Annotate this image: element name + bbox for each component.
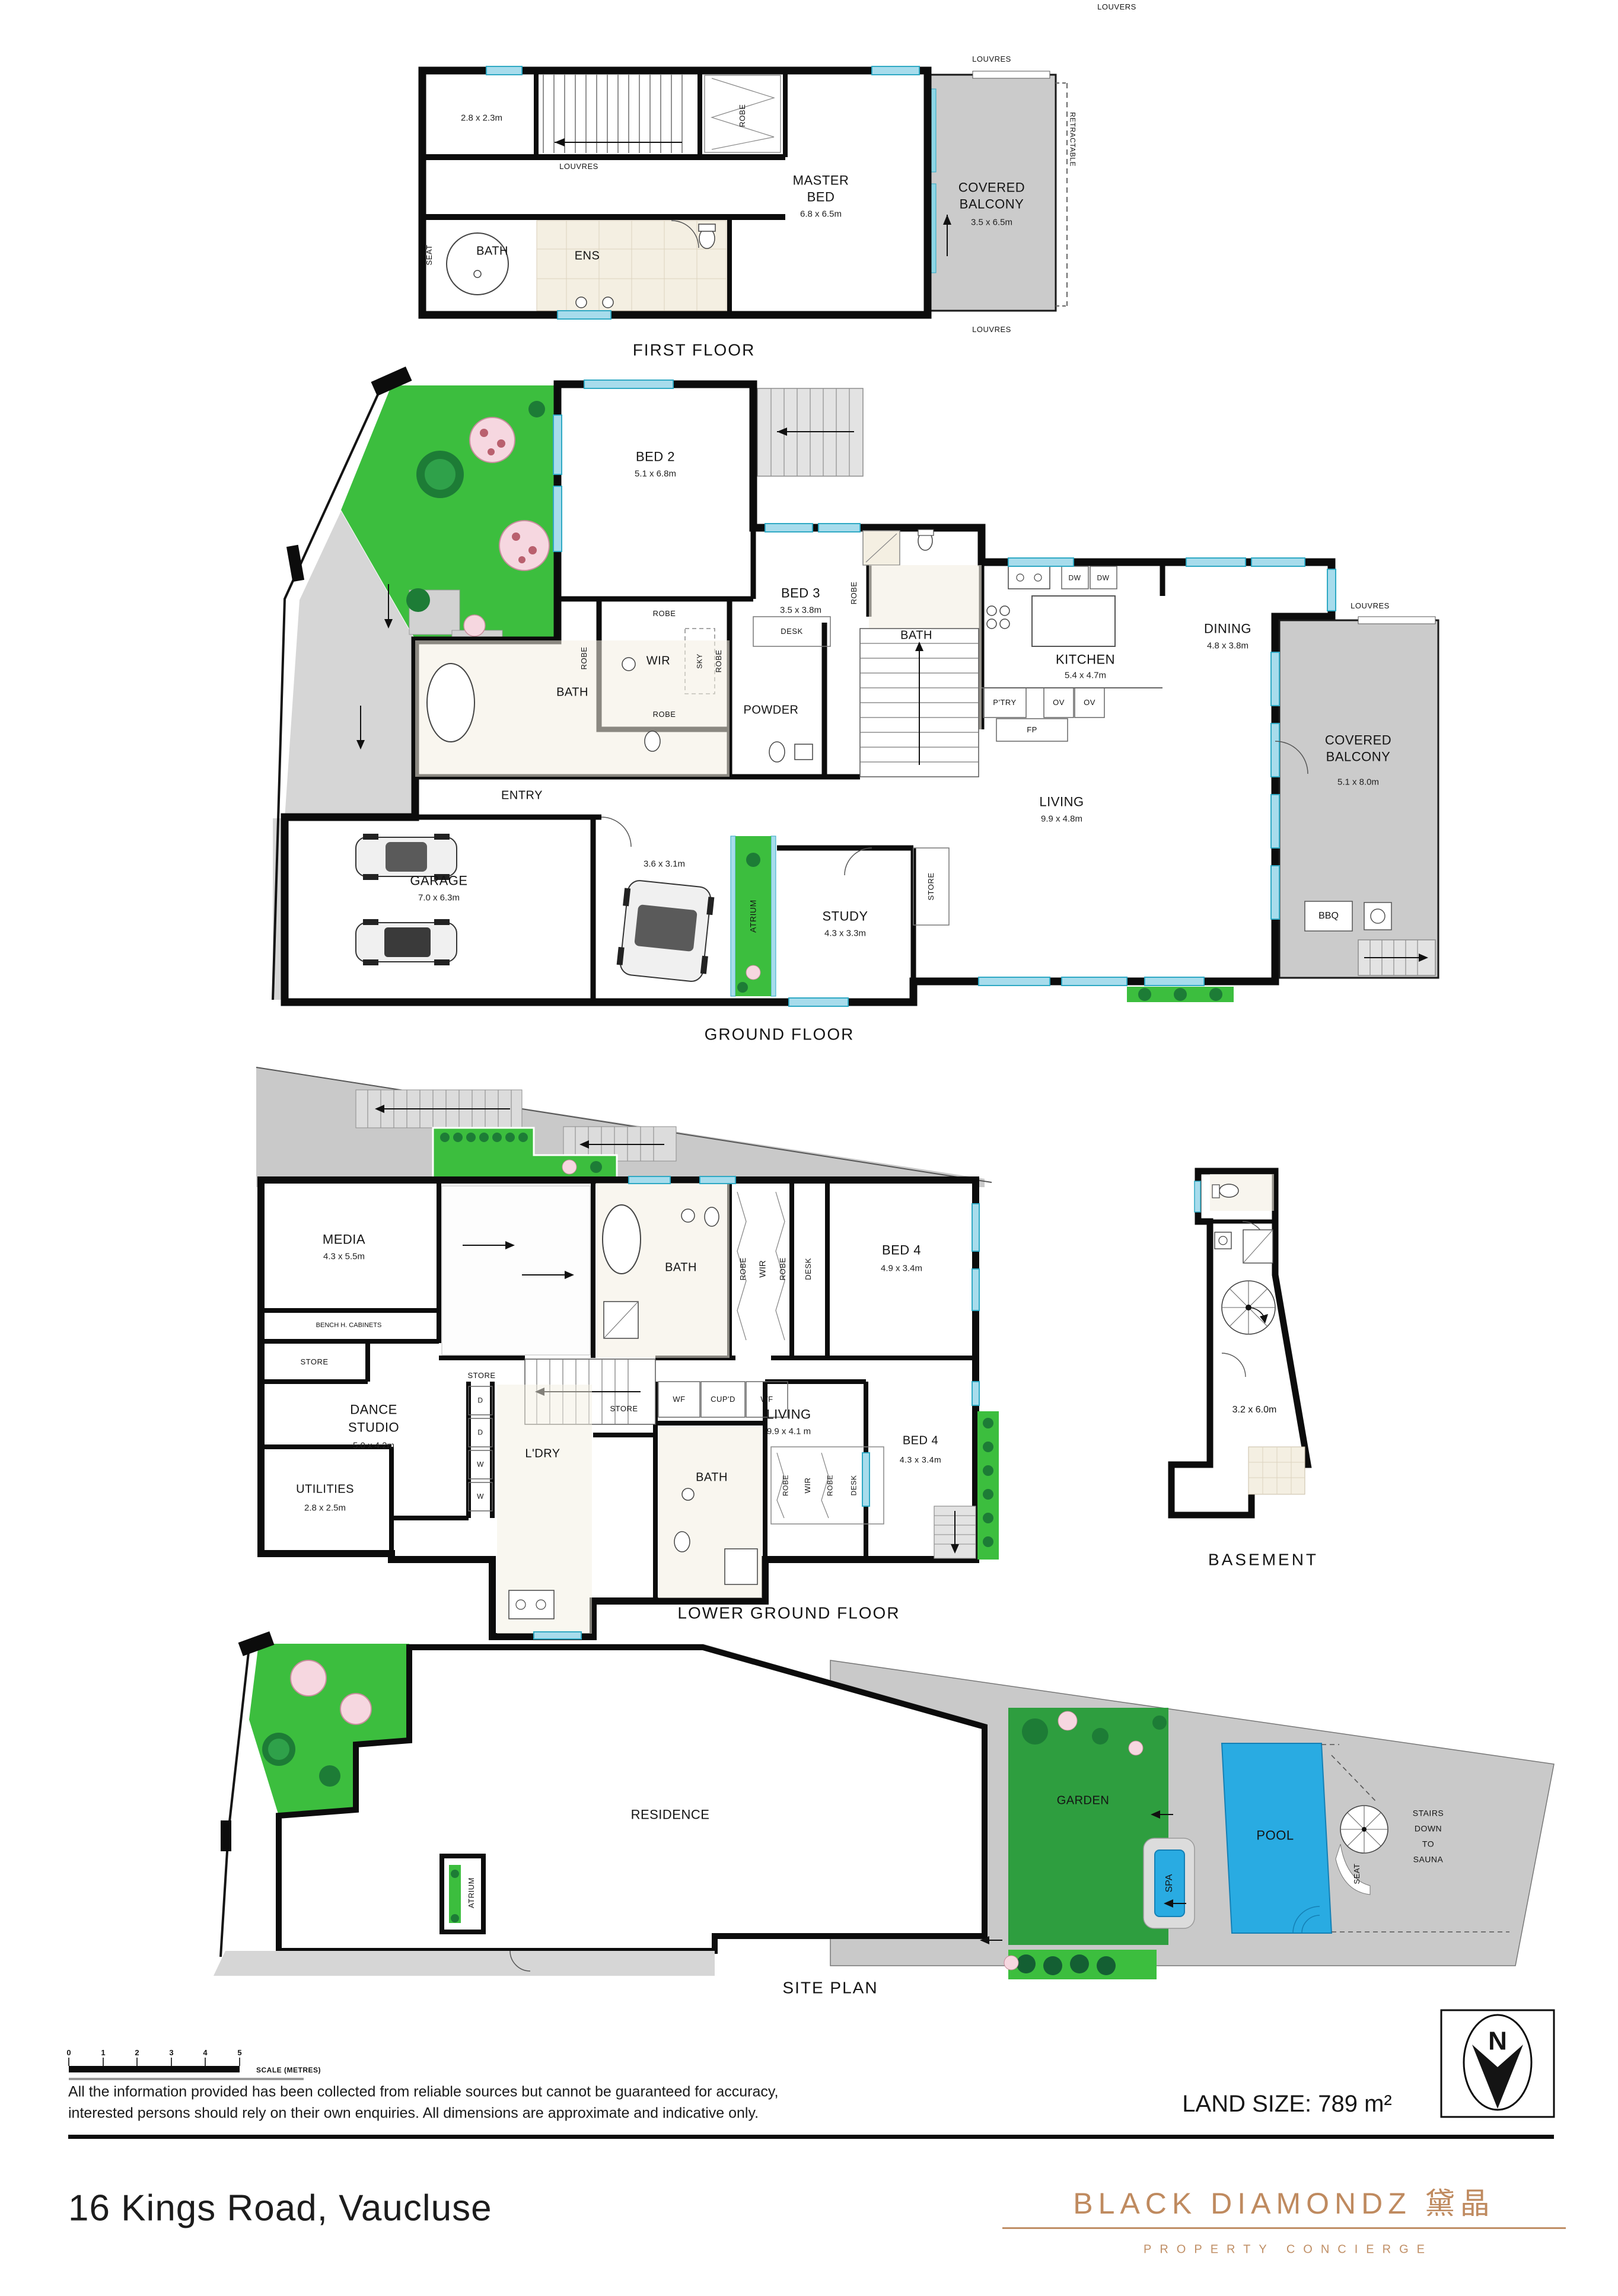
site-residence-label: RESIDENCE bbox=[631, 1806, 710, 1823]
gf-balcony-label: COVERED BALCONY bbox=[1314, 732, 1403, 765]
lg-w2-label: W bbox=[477, 1493, 484, 1501]
land-size-label: LAND SIZE: 789 m² bbox=[1182, 2089, 1391, 2119]
ff-louvres-bottom-label: LOUVRES bbox=[972, 325, 1011, 334]
toilet-icon bbox=[769, 742, 785, 762]
gf-robe-right-label: ROBE bbox=[714, 650, 724, 673]
gf-powder-label: POWDER bbox=[744, 703, 799, 718]
lg-d1-label: D bbox=[477, 1396, 483, 1405]
site-atrium bbox=[442, 1856, 483, 1932]
lg-robe-a-label: ROBE bbox=[738, 1258, 748, 1281]
lg-bed4-upper-label: BED 4 bbox=[882, 1242, 921, 1258]
site-stairs-line1: STAIRS bbox=[1413, 1808, 1444, 1819]
lg-desk-lower-label: DESK bbox=[850, 1475, 859, 1496]
gf-dw2-label: DW bbox=[1097, 574, 1110, 583]
scale-tick-2: 2 bbox=[135, 2048, 139, 2058]
address-title: 16 Kings Road, Vaucluse bbox=[68, 2187, 492, 2230]
site-stairs-line3: TO bbox=[1422, 1839, 1434, 1849]
ff-ens-label: ENS bbox=[575, 249, 600, 264]
lg-robe-d-label: ROBE bbox=[826, 1475, 835, 1496]
footer-divider bbox=[68, 2135, 1554, 2139]
lg-utilities-dim: 2.8 x 2.5m bbox=[304, 1503, 346, 1514]
disclaimer-line1: All the information provided has been co… bbox=[68, 2084, 778, 2101]
lg-wf2-label: WF bbox=[760, 1395, 773, 1404]
ff-balcony-dim: 3.5 x 6.5m bbox=[971, 218, 1012, 229]
disclaimer-line2: interested persons should rely on their … bbox=[68, 2105, 759, 2122]
gf-study-dim: 4.3 x 3.3m bbox=[824, 929, 866, 940]
lg-wf1-label: WF bbox=[673, 1395, 685, 1404]
gf-ptry-label: P'TRY bbox=[993, 698, 1016, 707]
gf-desk-label: DESK bbox=[781, 627, 802, 636]
logo-rule bbox=[1002, 2227, 1566, 2229]
gf-dining-dim: 4.8 x 3.8m bbox=[1207, 641, 1248, 652]
gf-robe-bottom-label: ROBE bbox=[653, 710, 676, 719]
lg-dance-label: DANCE bbox=[350, 1401, 397, 1418]
caption-lower-ground-floor: LOWER GROUND FLOOR bbox=[677, 1603, 900, 1624]
lg-robe-b-label: ROBE bbox=[778, 1258, 788, 1281]
caption-basement: BASEMENT bbox=[1208, 1549, 1318, 1570]
car-icon bbox=[616, 879, 715, 983]
gf-bbq-label: BBQ bbox=[1318, 910, 1339, 922]
gf-bed3-dim: 3.5 x 3.8m bbox=[780, 605, 821, 617]
ff-retractable-label: RETRACTABLE bbox=[1068, 112, 1077, 167]
louvers-top-label: LOUVERS bbox=[1097, 2, 1136, 12]
lg-bench-label: BENCH H. CABINETS bbox=[316, 1322, 382, 1330]
gf-dining-label: DINING bbox=[1204, 620, 1251, 637]
scale-caption: SCALE (METRES) bbox=[256, 2066, 321, 2074]
ff-louvres-mid-label: LOUVRES bbox=[559, 162, 598, 171]
basement-dim-label: 3.2 x 6.0m bbox=[1232, 1404, 1277, 1416]
lg-store-bottom-label: STORE bbox=[610, 1404, 638, 1414]
gf-robe-top-label: ROBE bbox=[653, 609, 676, 618]
gf-store-label: STORE bbox=[926, 872, 936, 900]
ff-robe-label: ROBE bbox=[738, 104, 747, 127]
gf-study-label: STUDY bbox=[822, 908, 868, 924]
gf-robe-bed3-label: ROBE bbox=[849, 582, 859, 605]
ff-seat-label: SEAT bbox=[425, 245, 434, 266]
gf-entry-label: ENTRY bbox=[501, 789, 543, 803]
lg-utilities-label: UTILITIES bbox=[296, 1482, 354, 1497]
gf-robe-left-label: ROBE bbox=[579, 647, 589, 670]
site-stairs-line4: SAUNA bbox=[1413, 1854, 1444, 1865]
lg-wir-lower-label: WIR bbox=[803, 1478, 813, 1494]
site-pool-label: POOL bbox=[1256, 1827, 1294, 1844]
scale-tick-1: 1 bbox=[101, 2048, 105, 2058]
gf-living-label: LIVING bbox=[1039, 793, 1084, 810]
site-stairs-line2: DOWN bbox=[1415, 1823, 1442, 1834]
lg-media-dim: 4.3 x 5.5m bbox=[323, 1252, 365, 1263]
site-plan bbox=[214, 1631, 1554, 1979]
basement-plan bbox=[1171, 1171, 1308, 1515]
lg-media-label: MEDIA bbox=[323, 1231, 365, 1248]
kitchen-island bbox=[1032, 596, 1115, 646]
gf-kitchen-label: KITCHEN bbox=[1056, 651, 1115, 668]
gf-garage-label: GARAGE bbox=[410, 872, 467, 889]
lg-bed4-lower-dim: 4.3 x 3.4m bbox=[900, 1455, 941, 1465]
lg-dance-dim: 5.0 x 4.2m bbox=[353, 1441, 394, 1452]
ff-louvres-top-label: LOUVRES bbox=[972, 55, 1011, 64]
gf-fp-label: FP bbox=[1027, 725, 1037, 735]
gf-wir-label: WIR bbox=[646, 654, 670, 669]
site-seat-label: SEAT bbox=[1352, 1864, 1362, 1884]
car-icon bbox=[356, 919, 457, 965]
lg-d2-label: D bbox=[477, 1428, 483, 1437]
lg-bath-lower-label: BATH bbox=[696, 1471, 728, 1485]
scale-tick-3: 3 bbox=[169, 2048, 173, 2058]
gf-bed3-label: BED 3 bbox=[781, 585, 820, 601]
lg-living-dim: 9.9 x 4.1 m bbox=[767, 1427, 811, 1438]
scale-tick-4: 4 bbox=[203, 2048, 207, 2058]
caption-site-plan: SITE PLAN bbox=[782, 1978, 878, 1998]
site-atrium-label: ATRIUM bbox=[467, 1877, 476, 1908]
ff-master-bed-label: MASTER BED bbox=[785, 173, 856, 205]
toilet-icon bbox=[1219, 1184, 1238, 1197]
floorplan-graphics bbox=[0, 0, 1618, 2296]
caption-ground-floor: GROUND FLOOR bbox=[705, 1024, 855, 1045]
spiral-stair-icon bbox=[1222, 1281, 1275, 1334]
lg-bed4-upper-dim: 4.9 x 3.4m bbox=[881, 1264, 922, 1275]
ff-master-bed-dim: 6.8 x 6.5m bbox=[800, 209, 842, 221]
gf-bed2-dim: 5.1 x 6.8m bbox=[635, 469, 676, 480]
gf-bath-main-label: BATH bbox=[556, 685, 588, 700]
bathtub-icon bbox=[447, 233, 508, 295]
ff-balcony-label: COVERED BALCONY bbox=[950, 180, 1033, 212]
gf-carport-dim: 3.6 x 3.1m bbox=[644, 859, 685, 870]
site-spiral-stair-icon bbox=[1340, 1806, 1388, 1853]
lg-desk-upper-label: DESK bbox=[804, 1258, 813, 1280]
bathtub-icon bbox=[427, 664, 474, 742]
gf-garage-dim: 7.0 x 6.3m bbox=[418, 893, 460, 904]
kitchen-sink-icon bbox=[1008, 566, 1050, 589]
gf-louvres-label: LOUVRES bbox=[1351, 601, 1390, 611]
logo-brand: BLACK DIAMONDZ 黛晶 bbox=[1073, 2185, 1495, 2222]
lg-ldry-label: L'DRY bbox=[525, 1447, 560, 1462]
gf-dw1-label: DW bbox=[1069, 574, 1081, 583]
lg-robe-c-label: ROBE bbox=[782, 1475, 791, 1496]
scale-tick-5: 5 bbox=[237, 2048, 241, 2058]
ff-bath-label: BATH bbox=[476, 244, 508, 259]
site-garden-label: GARDEN bbox=[1057, 1794, 1110, 1809]
gf-balcony-dim: 5.1 x 8.0m bbox=[1337, 777, 1379, 789]
gf-ov1-label: OV bbox=[1053, 698, 1065, 707]
lg-store-left-label: STORE bbox=[300, 1357, 328, 1367]
compass-north-label: N bbox=[1488, 2025, 1507, 2058]
lg-w1-label: W bbox=[477, 1460, 484, 1469]
lg-studio-label: STUDIO bbox=[348, 1419, 399, 1436]
logo-tagline: PROPERTY CONCIERGE bbox=[1144, 2243, 1433, 2257]
gf-bed2-label: BED 2 bbox=[636, 448, 675, 465]
lg-store-mid-label: STORE bbox=[467, 1371, 495, 1380]
ground-covered-balcony bbox=[1279, 620, 1438, 978]
lg-wir-upper-label: WIR bbox=[758, 1260, 769, 1277]
ff-room-dim-label: 2.8 x 2.3m bbox=[461, 113, 502, 125]
site-spa-label: SPA bbox=[1164, 1874, 1176, 1893]
gf-bath-ens-label: BATH bbox=[900, 629, 932, 643]
gf-living-dim: 9.9 x 4.8m bbox=[1041, 814, 1082, 825]
lower-ground-plan bbox=[256, 1067, 999, 1639]
scale-tick-0: 0 bbox=[66, 2048, 71, 2058]
caption-first-floor: FIRST FLOOR bbox=[633, 340, 756, 361]
gf-sky-label: SKY bbox=[696, 653, 705, 669]
lg-cupd-label: CUP'D bbox=[711, 1395, 735, 1404]
gf-atrium-label: ATRIUM bbox=[748, 900, 759, 933]
lg-living-label: LIVING bbox=[766, 1406, 811, 1423]
lg-bath-upper-label: BATH bbox=[665, 1261, 697, 1275]
gf-kitchen-dim: 5.4 x 4.7m bbox=[1065, 671, 1106, 682]
lg-bed4-lower-label: BED 4 bbox=[903, 1434, 938, 1449]
gf-ov2-label: OV bbox=[1084, 698, 1095, 707]
